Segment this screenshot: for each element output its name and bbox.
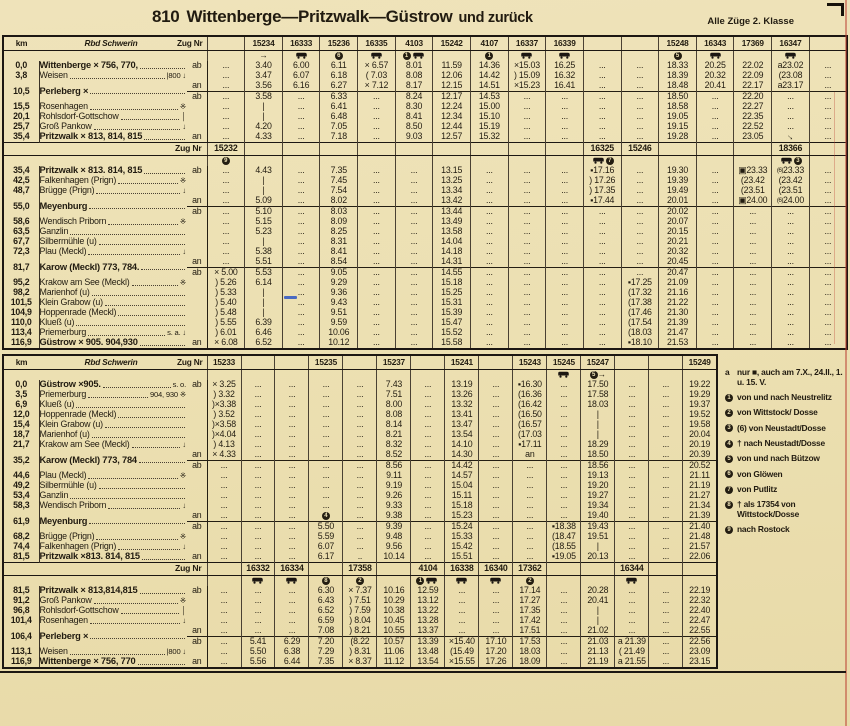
time-cell: ... bbox=[508, 132, 546, 143]
zug-number-cell bbox=[309, 563, 343, 576]
time-cell: ... bbox=[583, 81, 621, 92]
bus-icon bbox=[558, 52, 571, 59]
time-cell: 19.28 bbox=[659, 132, 697, 143]
stop-label bbox=[187, 217, 207, 227]
station-name: Wittenberge × 756, 770 bbox=[40, 657, 136, 667]
station-symbols: ↓ bbox=[182, 616, 187, 626]
time-cell: ▪18.10 bbox=[621, 338, 659, 349]
dot-leader bbox=[140, 593, 186, 594]
station-symbols: ↓ bbox=[182, 247, 187, 257]
table-row: 116,9Wittenberge × 756, 770an...5.566.44… bbox=[3, 657, 717, 668]
circled-number-icon: 5 bbox=[725, 454, 737, 464]
time-cell: ... bbox=[445, 626, 479, 637]
station-name: Plau (Meckl) bbox=[40, 247, 87, 257]
table-row: 48,7Brügge (Prign)↓...|...7.54......13.3… bbox=[3, 186, 847, 196]
time-cell: 22.06 bbox=[683, 552, 717, 563]
time-cell: 14.30 bbox=[445, 450, 479, 461]
station-cell: Pritzwalk ×813. 814, 815 bbox=[39, 552, 187, 563]
station-cell: Perleberg × bbox=[39, 626, 187, 647]
time-cell: ... bbox=[508, 196, 546, 207]
dot-leader bbox=[92, 295, 185, 296]
station-name: Rosenhagen bbox=[40, 616, 88, 626]
zug-number-cell bbox=[621, 36, 659, 51]
dot-leader bbox=[144, 139, 185, 140]
circled-number-icon: 2 bbox=[356, 577, 364, 585]
bus-icon bbox=[780, 157, 793, 164]
station-symbols: ※ bbox=[180, 471, 187, 481]
station-name: Meyenburg bbox=[40, 517, 88, 527]
zugnr-label: Zug Nr bbox=[3, 143, 207, 156]
time-cell: 14.31 bbox=[433, 257, 471, 268]
time-cell: ... bbox=[282, 257, 320, 268]
bus-icon bbox=[425, 577, 438, 584]
stop-label: an bbox=[187, 132, 207, 143]
dot-leader bbox=[141, 269, 185, 270]
station-name: Brügge (Prign) bbox=[40, 186, 95, 196]
time-cell: 13.42 bbox=[433, 196, 471, 207]
km-cell: 58,3 bbox=[3, 501, 39, 511]
zug-number-cell: 16340 bbox=[479, 563, 513, 576]
km-cell: 106,4 bbox=[3, 626, 39, 647]
dot-leader bbox=[118, 417, 185, 418]
time-cell: ... bbox=[479, 450, 513, 461]
time-cell: 18.48 bbox=[659, 81, 697, 92]
time-cell: ... bbox=[809, 257, 847, 268]
dot-leader bbox=[76, 325, 185, 326]
table-row: 104,9Hoppenrade (Meckl)) 5.48|...9.51...… bbox=[3, 308, 847, 318]
footnote-item: 9nach Rostock bbox=[725, 525, 849, 535]
stop-label bbox=[187, 298, 207, 308]
time-cell: ... bbox=[547, 450, 581, 461]
time-cell: ... bbox=[358, 132, 396, 143]
zug-number-cell bbox=[275, 355, 309, 370]
zug-number-cell: 15247 bbox=[581, 355, 615, 370]
circled-number-icon: 5 bbox=[590, 371, 598, 379]
time-cell: .. bbox=[343, 552, 377, 563]
bus-icon bbox=[455, 577, 468, 584]
time-cell: ▪17.44 bbox=[583, 196, 621, 207]
stop-label: an bbox=[187, 657, 207, 668]
station-cell: Güstrow × 905. 904,930 bbox=[39, 338, 187, 349]
lower-section: kmRbd SchwerinZug Nr15233152351523715241… bbox=[0, 354, 850, 669]
zug-number-cell: 4103 bbox=[395, 36, 433, 51]
time-cell: ... bbox=[508, 338, 546, 349]
stop-label: ab bbox=[187, 207, 207, 218]
station-symbols: 904, 930 ※ bbox=[150, 390, 187, 400]
table-row: 72,3Plau (Meckl)↓...5.38...8.41......14.… bbox=[3, 247, 847, 257]
km-cell: 10,5 bbox=[3, 81, 39, 102]
dot-leader bbox=[118, 549, 180, 550]
zug-number-cell: 15242 bbox=[433, 36, 471, 51]
time-cell: 18.50 bbox=[581, 450, 615, 461]
time-cell: 17.51 bbox=[513, 626, 547, 637]
time-cell: ... bbox=[547, 511, 581, 522]
zugnr-label: Zug Nr bbox=[177, 358, 207, 368]
station-name: Güstrow × 905. 904,930 bbox=[40, 338, 138, 348]
stop-label bbox=[187, 596, 207, 606]
time-cell: ... bbox=[395, 338, 433, 349]
dot-leader bbox=[108, 224, 178, 225]
time-cell: ... bbox=[615, 450, 649, 461]
time-cell: 5.51 bbox=[245, 257, 283, 268]
zug-number-cell: 16325 bbox=[583, 143, 621, 156]
circled-number-icon: 7 bbox=[606, 157, 614, 165]
stop-label: ab bbox=[187, 166, 207, 176]
dot-leader bbox=[70, 234, 185, 235]
time-cell: a23.17 bbox=[772, 81, 810, 92]
time-cell: ... bbox=[649, 511, 683, 522]
table-row: 63,5Ganzlin...5.23...8.25......13.58....… bbox=[3, 227, 847, 237]
time-cell: ▪19.05 bbox=[547, 552, 581, 563]
station-symbols: ※ bbox=[180, 176, 187, 186]
time-cell: ... bbox=[358, 338, 396, 349]
time-cell: 8.54 bbox=[320, 257, 358, 268]
dot-leader bbox=[99, 244, 185, 245]
time-cell: 18.09 bbox=[513, 657, 547, 668]
table-row: 101,5Klein Grabow (u)) 5.40|...9.43.....… bbox=[3, 298, 847, 308]
time-cell: ... bbox=[621, 196, 659, 207]
footnote-text: nach Rostock bbox=[737, 525, 849, 535]
dot-leader bbox=[88, 397, 148, 398]
bus-icon bbox=[592, 157, 605, 164]
station-symbols: |800 ↓ bbox=[167, 647, 187, 657]
zug-number-cell bbox=[583, 36, 621, 51]
zug-number-cell: 17362 bbox=[513, 563, 547, 576]
table-row: 15,5Rosenhagen※...|...6.41...8.3012.2415… bbox=[3, 102, 847, 112]
zug-number-cell: 15249 bbox=[683, 355, 717, 370]
stop-label: an bbox=[187, 257, 207, 268]
bus-icon bbox=[784, 52, 797, 59]
time-cell: ▣24.00 bbox=[734, 196, 772, 207]
stop-label bbox=[187, 102, 207, 112]
bus-icon bbox=[709, 52, 722, 59]
table-row: Zug Nr15232163251524618366 bbox=[3, 143, 847, 156]
time-cell: ... bbox=[207, 552, 241, 563]
dot-leader bbox=[105, 305, 185, 306]
stop-label bbox=[187, 176, 207, 186]
zug-number-cell bbox=[696, 143, 734, 156]
circled-number-icon: 2 bbox=[526, 577, 534, 585]
time-cell: ... bbox=[621, 257, 659, 268]
stop-label: ab bbox=[187, 461, 207, 472]
station-cell: Karow (Meckl) 773, 784 bbox=[39, 450, 187, 471]
bus-icon bbox=[370, 52, 383, 59]
time-cell: ... bbox=[241, 552, 275, 563]
time-cell: 8.52 bbox=[377, 450, 411, 461]
dot-leader bbox=[70, 654, 165, 655]
time-cell: 10.14 bbox=[377, 552, 411, 563]
class-note: Alle Züge 2. Klasse bbox=[707, 16, 794, 27]
dot-leader bbox=[138, 664, 185, 665]
zugnr-label: Zug Nr bbox=[3, 563, 207, 576]
station-cell: Plau (Meckl)↓ bbox=[39, 247, 187, 257]
dot-leader bbox=[96, 193, 180, 194]
table-row: 35,4Pritzwalk × 813, 814, 815an...4.33..… bbox=[3, 132, 847, 143]
dot-leader bbox=[140, 345, 185, 346]
page-title: 810Wittenberge—Pritzwalk—Güstrowund zurü… bbox=[152, 7, 533, 27]
km-cell: 116,9 bbox=[3, 338, 39, 349]
time-cell: ... bbox=[358, 196, 396, 207]
circled-number-icon: 5 bbox=[674, 52, 682, 60]
station-symbols: ※ bbox=[180, 278, 187, 288]
table-row: 106,4Perleberg ×an.........7.08) 8.2110.… bbox=[3, 626, 717, 637]
time-cell: ... bbox=[583, 338, 621, 349]
bus-icon bbox=[625, 577, 638, 584]
zug-number-cell bbox=[358, 143, 396, 156]
bus-icon bbox=[412, 52, 425, 59]
zug-number-cell bbox=[809, 36, 847, 51]
footnote-text: (6) von Neustadt/Dosse bbox=[737, 424, 849, 434]
time-cell: ... bbox=[207, 81, 245, 92]
time-cell: 22.17 bbox=[734, 81, 772, 92]
time-cell: ... bbox=[411, 552, 445, 563]
zug-number-cell: 17358 bbox=[343, 563, 377, 576]
time-cell: ... bbox=[275, 626, 309, 637]
rbd-header: Rbd SchwerinZug Nr bbox=[39, 355, 207, 370]
time-cell: ... bbox=[809, 81, 847, 92]
dot-leader bbox=[105, 427, 185, 428]
time-cell: ... bbox=[309, 450, 343, 461]
zug-number-cell bbox=[471, 143, 509, 156]
station-name: Pritzwalk ×813. 814, 815 bbox=[40, 552, 140, 562]
stop-label bbox=[187, 410, 207, 420]
time-cell: 15.23 bbox=[445, 511, 479, 522]
bus-icon bbox=[285, 577, 298, 584]
station-name: Perleberg × bbox=[40, 87, 89, 97]
time-cell: ... bbox=[696, 338, 734, 349]
bus-icon bbox=[557, 371, 570, 378]
zug-number-cell bbox=[649, 563, 683, 576]
time-cell: ... bbox=[513, 552, 547, 563]
station-name: Karow (Meckl) 773, 784. bbox=[40, 263, 140, 273]
time-cell: 21.39 bbox=[683, 511, 717, 522]
zug-number-cell: 15243 bbox=[513, 355, 547, 370]
time-cell: 20.01 bbox=[659, 196, 697, 207]
time-cell: ... bbox=[696, 196, 734, 207]
zug-number-cell: 16334 bbox=[275, 563, 309, 576]
zug-number-cell: 16344 bbox=[615, 563, 649, 576]
zug-number-cell bbox=[395, 143, 433, 156]
time-cell: 5.09 bbox=[245, 196, 283, 207]
time-cell: ... bbox=[513, 511, 547, 522]
km-cell: 21,7 bbox=[3, 440, 39, 450]
station-cell: Perleberg × bbox=[39, 81, 187, 102]
zug-number-cell bbox=[659, 143, 697, 156]
km-cell: 72,3 bbox=[3, 247, 39, 257]
note-6-mark: (6) bbox=[777, 197, 783, 204]
time-cell: 16.41 bbox=[546, 81, 584, 92]
station-cell: Pritzwalk × 813, 814, 815 bbox=[39, 132, 187, 143]
table-row: 116,9Güstrow × 905. 904,930an× 6.086.52.… bbox=[3, 338, 847, 349]
time-cell: ... bbox=[696, 257, 734, 268]
station-name: Krakow am See (Meckl) bbox=[40, 440, 130, 450]
time-cell: 19.40 bbox=[581, 511, 615, 522]
stop-label: ab bbox=[187, 92, 207, 103]
station-symbols: ↓ bbox=[182, 542, 187, 552]
dot-leader bbox=[99, 488, 185, 489]
stop-label bbox=[187, 420, 207, 430]
timetable-return: kmRbd SchwerinZug Nr15233152351523715241… bbox=[2, 354, 718, 669]
station-symbols: ※ bbox=[180, 596, 187, 606]
stop-label bbox=[187, 227, 207, 237]
zug-number-cell bbox=[546, 143, 584, 156]
time-cell: a 21.55 bbox=[615, 657, 649, 668]
table-row: 35,2Karow (Meckl) 773, 784an× 4.33......… bbox=[3, 450, 717, 461]
time-cell: 10.12 bbox=[320, 338, 358, 349]
dot-leader bbox=[89, 523, 185, 524]
time-cell: 4.33 bbox=[245, 132, 283, 143]
time-cell: 14.51 bbox=[471, 81, 509, 92]
footnote-text: von Putlitz bbox=[737, 485, 849, 495]
time-cell: an bbox=[513, 450, 547, 461]
table-row: Zug Nr1633216334173584104163381634017362… bbox=[3, 563, 717, 576]
dot-leader bbox=[121, 613, 180, 614]
table-row: 55,0Meyenburgan...5.09...8.02......13.42… bbox=[3, 196, 847, 207]
circled-number-icon: 4 bbox=[725, 439, 737, 449]
footnote-text: † nach Neustadt/Dosse bbox=[737, 439, 849, 449]
dot-leader bbox=[88, 335, 165, 336]
footnote-marker: a bbox=[725, 368, 737, 388]
stop-label: an bbox=[187, 626, 207, 637]
km-header: km bbox=[3, 36, 39, 51]
table-row: kmRbd SchwerinZug Nr15233152351523715241… bbox=[3, 355, 717, 370]
stop-label bbox=[187, 400, 207, 410]
zug-number-cell: 16337 bbox=[508, 36, 546, 51]
zug-number-cell: 16347 bbox=[772, 36, 810, 51]
time-cell: ... bbox=[547, 626, 581, 637]
zug-number-cell bbox=[734, 143, 772, 156]
footnote-a: anur ■, auch am 7.X., 24.II., 1. u. 15. … bbox=[725, 368, 849, 388]
dot-leader bbox=[121, 119, 180, 120]
time-cell: 23.15 bbox=[683, 657, 717, 668]
zug-number-cell bbox=[479, 355, 513, 370]
circled-number-icon: 6 bbox=[725, 470, 737, 480]
zug-number-cell: 15248 bbox=[659, 36, 697, 51]
time-cell: ... bbox=[241, 626, 275, 637]
zug-number-cell: 16339 bbox=[546, 36, 584, 51]
zug-number-cell: 16343 bbox=[696, 36, 734, 51]
km-cell: 3,8 bbox=[3, 71, 39, 81]
time-cell: 9.38 bbox=[377, 511, 411, 522]
zug-number-cell: 17369 bbox=[734, 36, 772, 51]
zug-number-cell: 15241 bbox=[445, 355, 479, 370]
time-cell: ... bbox=[772, 257, 810, 268]
footnote-text: von Glöwen bbox=[737, 470, 849, 480]
dot-leader bbox=[70, 78, 165, 79]
circled-number-icon: 8 bbox=[725, 500, 737, 520]
time-cell: ... bbox=[207, 196, 245, 207]
stop-label bbox=[187, 390, 207, 400]
zug-number-cell bbox=[433, 143, 471, 156]
time-cell: 20.45 bbox=[659, 257, 697, 268]
time-cell: × 7.12 bbox=[358, 81, 396, 92]
time-cell: ... bbox=[734, 257, 772, 268]
station-symbols: ※ bbox=[180, 102, 187, 112]
stop-label bbox=[187, 308, 207, 318]
time-cell: ... bbox=[649, 626, 683, 637]
footnote-text: von und nach Bützow bbox=[737, 454, 849, 464]
bus-icon bbox=[489, 577, 502, 584]
time-cell: 13.54 bbox=[411, 657, 445, 668]
time-cell: ... bbox=[583, 132, 621, 143]
zug-number-cell bbox=[320, 143, 358, 156]
zug-number-cell bbox=[245, 143, 283, 156]
time-cell: 22.55 bbox=[683, 626, 717, 637]
dot-leader bbox=[96, 539, 177, 540]
through-arrow-icon: → bbox=[259, 50, 267, 60]
circled-number-icon: 6 bbox=[335, 52, 343, 60]
dot-leader bbox=[89, 208, 185, 209]
km-cell: 48,7 bbox=[3, 186, 39, 196]
zug-number-cell: 16335 bbox=[358, 36, 396, 51]
footnote-item: 8† als 17354 von Wittstock/Dosse bbox=[725, 500, 849, 520]
time-cell: ×15.23 bbox=[508, 81, 546, 92]
dot-leader bbox=[90, 93, 185, 94]
dot-leader bbox=[103, 387, 171, 388]
footnote-text: nur ■, auch am 7.X., 24.II., 1. u. 15. V… bbox=[737, 368, 849, 388]
time-cell: ... bbox=[207, 257, 245, 268]
time-cell: 6.27 bbox=[320, 81, 358, 92]
rbd-header: Rbd SchwerinZug Nr bbox=[39, 36, 207, 51]
dot-leader bbox=[90, 638, 185, 639]
zugnr-label: Zug Nr bbox=[177, 39, 207, 49]
circled-number-icon: 3 bbox=[725, 424, 737, 434]
time-cell: ... bbox=[309, 501, 343, 511]
time-cell: ... bbox=[395, 257, 433, 268]
time-cell: 7.18 bbox=[320, 132, 358, 143]
station-cell: Brügge (Prign)↓ bbox=[39, 186, 187, 196]
stop-label bbox=[187, 430, 207, 440]
time-cell: 6.17 bbox=[309, 552, 343, 563]
station-name: Perleberg × bbox=[40, 632, 89, 642]
stop-label: ab bbox=[187, 637, 207, 648]
time-cell: 7.35 bbox=[309, 657, 343, 668]
time-cell: 10.55 bbox=[377, 626, 411, 637]
stop-label bbox=[187, 606, 207, 616]
table-row: 10,5Perleberg ×an...3.566.166.27× 7.128.… bbox=[3, 81, 847, 92]
time-cell: ... bbox=[282, 132, 320, 143]
km-cell: 35,4 bbox=[3, 132, 39, 143]
table-row: 42,5Falkenhagen (Prign)※...|...7.45.....… bbox=[3, 176, 847, 186]
dot-leader bbox=[92, 437, 185, 438]
time-cell: 13.37 bbox=[411, 626, 445, 637]
station-symbols: |800 ↓ bbox=[167, 71, 187, 81]
note-6-mark: (6) bbox=[777, 167, 783, 174]
time-cell: ... bbox=[809, 196, 847, 207]
line-route: Wittenberge—Pritzwalk—Güstrow bbox=[186, 7, 452, 26]
circled-number-icon: 9 bbox=[725, 525, 737, 535]
icons-spacer bbox=[3, 370, 207, 381]
footnote-text: von und nach Neustrelitz bbox=[737, 393, 849, 403]
stop-label: ab bbox=[187, 522, 207, 533]
km-cell: 101,4 bbox=[3, 616, 39, 626]
time-cell: ... bbox=[649, 552, 683, 563]
time-cell: ... bbox=[207, 657, 241, 668]
km-cell: 81,7 bbox=[3, 257, 39, 278]
time-cell: ... bbox=[343, 450, 377, 461]
km-cell: 55,0 bbox=[3, 196, 39, 217]
time-cell: 7.08 bbox=[309, 626, 343, 637]
stop-label: ab bbox=[187, 268, 207, 279]
station-name: Pritzwalk × 813, 814, 815 bbox=[40, 132, 143, 142]
dot-leader bbox=[70, 498, 185, 499]
time-cell: → bbox=[772, 132, 810, 143]
zug-number-cell bbox=[547, 563, 581, 576]
time-cell: ... bbox=[546, 338, 584, 349]
zug-number-cell bbox=[207, 563, 241, 576]
time-cell: ... bbox=[207, 626, 241, 637]
time-cell: 12.15 bbox=[433, 81, 471, 92]
